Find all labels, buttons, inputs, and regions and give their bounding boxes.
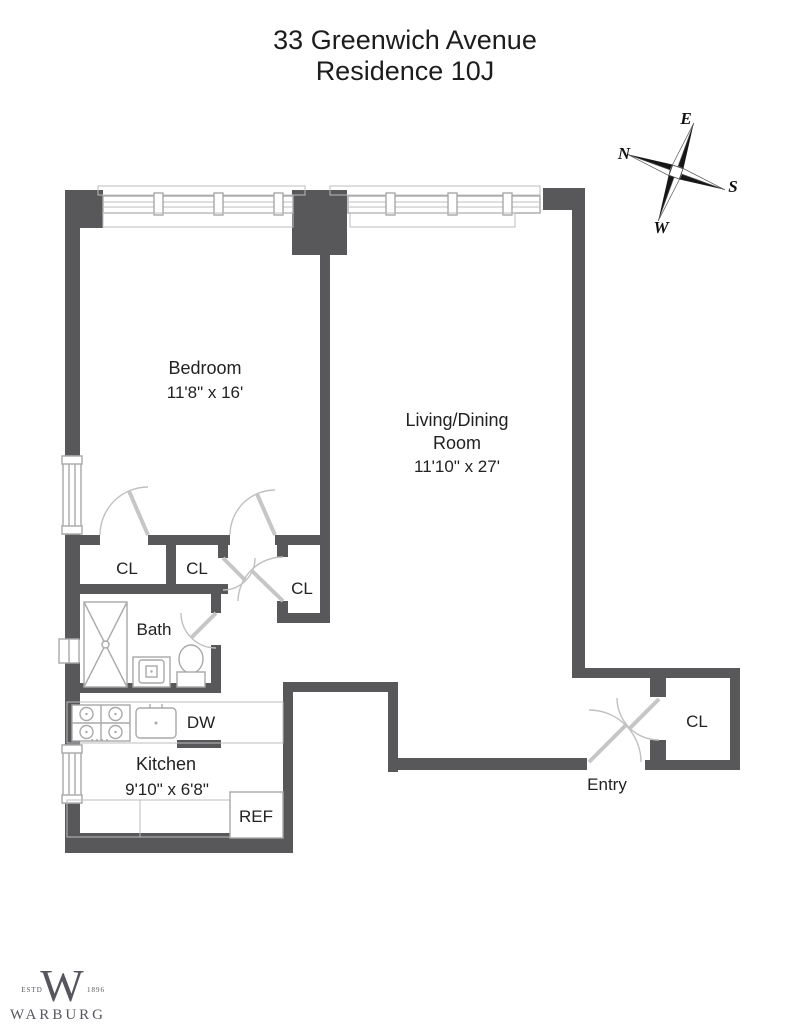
page-title-residence: Residence 10J	[316, 56, 495, 86]
warburg-monogram: W	[40, 960, 84, 1011]
bedroom-dimensions: 11'8" x 16'	[167, 383, 243, 402]
bedroom-south-wall-b	[148, 535, 230, 545]
refrigerator-label: REF	[239, 807, 273, 826]
entry-closet-doorway	[648, 697, 668, 740]
entry-closet-right-wall	[730, 678, 740, 770]
bedroom-south-wall-a	[65, 535, 100, 545]
bath-west-window	[59, 639, 79, 663]
kitchen-west-window	[62, 745, 82, 803]
living-dining-label-line2: Room	[433, 433, 481, 453]
entry-top-wall	[585, 668, 740, 678]
hall-closet-mid-label: CL	[291, 579, 313, 598]
warburg-estd: ESTD	[21, 986, 43, 994]
bath-label: Bath	[137, 620, 172, 639]
page-title-address: 33 Greenwich Avenue	[273, 25, 537, 55]
bath-fixtures	[84, 602, 205, 687]
kitchen-sink-icon	[136, 704, 176, 738]
living-dining-label-line1: Living/Dining	[405, 410, 508, 430]
left-wall-upper	[65, 190, 80, 458]
kitchen-counter-bottom	[67, 800, 230, 837]
closet2-door-stub	[218, 545, 228, 558]
warburg-year: 1896	[87, 986, 105, 994]
floorplan-canvas: 33 Greenwich Avenue Residence 10J E N S …	[0, 0, 800, 1036]
entry-bottom-wall	[645, 760, 740, 770]
entry-label: Entry	[587, 775, 627, 794]
compass-south-label: S	[728, 177, 737, 196]
compass-east-label: E	[679, 109, 691, 128]
kitchen-label: Kitchen	[136, 754, 196, 774]
stove-icon	[72, 705, 130, 741]
entry-closet-label: CL	[686, 712, 708, 731]
compass-rose-icon: E N S W	[609, 105, 742, 238]
bedroom-closet-door	[100, 487, 148, 535]
toilet-icon	[177, 645, 205, 687]
warburg-logo: W ESTD 1896 WARBURG	[10, 960, 106, 1023]
step-wall-vertical	[388, 692, 398, 772]
bedroom-window-band	[103, 196, 293, 213]
compass-west-label: W	[653, 218, 670, 237]
bedroom-closet-label: CL	[116, 559, 138, 578]
living-bottom-wall	[398, 758, 587, 770]
living-dining-dimensions: 11'10" x 27'	[414, 457, 500, 476]
bath-sink-icon	[133, 657, 170, 687]
floorplan-page: 33 Greenwich Avenue Residence 10J E N S …	[0, 0, 800, 1036]
corner-top-right	[543, 188, 585, 210]
hall-closet-mid-door	[238, 557, 283, 601]
bath-top-wall	[65, 584, 228, 594]
kitchen-right-wall	[283, 692, 293, 853]
warburg-name: WARBURG	[10, 1007, 106, 1023]
right-wall	[572, 208, 585, 678]
bath-door	[181, 613, 216, 648]
bedroom-label: Bedroom	[168, 358, 241, 378]
center-pillar	[292, 190, 347, 255]
bedroom-west-window	[62, 456, 82, 534]
hall-closet-left-label: CL	[186, 559, 208, 578]
bedroom-door	[230, 490, 275, 535]
compass-north-label: N	[617, 144, 631, 163]
corridor-bottom-wall	[283, 682, 398, 692]
entry-door	[589, 710, 641, 762]
kitchen-dimensions: 9'10" x 6'8"	[125, 780, 209, 799]
dishwasher-label: DW	[187, 713, 215, 732]
counter-end-wall	[177, 740, 221, 748]
bath-right-stub	[211, 594, 221, 613]
